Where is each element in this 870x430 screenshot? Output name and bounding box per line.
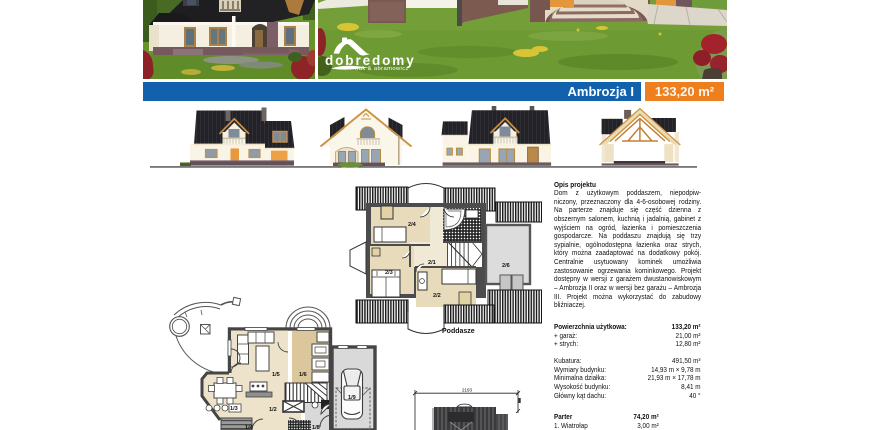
- svg-text:2/6: 2/6: [502, 263, 510, 269]
- svg-text:1/4: 1/4: [245, 425, 254, 430]
- svg-text:flak & abramowicz: flak & abramowicz: [355, 66, 409, 72]
- svg-text:1/5: 1/5: [272, 372, 280, 378]
- svg-text:2/3: 2/3: [385, 270, 393, 276]
- svg-text:1/3: 1/3: [230, 406, 238, 412]
- svg-text:1/8: 1/8: [312, 425, 320, 430]
- svg-text:1/9: 1/9: [348, 395, 356, 401]
- svg-text:1/6: 1/6: [299, 372, 307, 378]
- svg-text:2193: 2193: [462, 388, 473, 393]
- svg-text:1/2: 1/2: [269, 407, 277, 413]
- svg-text:2/1: 2/1: [428, 260, 436, 266]
- svg-text:2/2: 2/2: [433, 293, 441, 299]
- svg-text:2/4: 2/4: [408, 222, 417, 228]
